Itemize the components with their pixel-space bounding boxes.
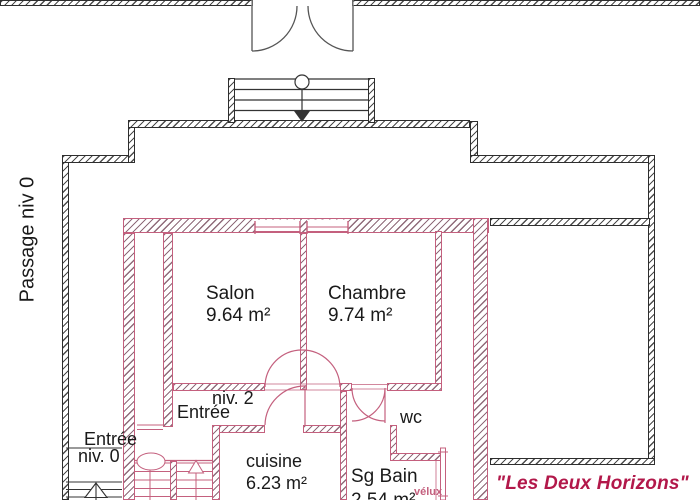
cuisine-area: 6.23 m² — [246, 474, 307, 493]
sgbain-area: 2.54 m² — [351, 491, 415, 500]
passage-label: Passage niv 0 — [18, 165, 39, 315]
chambre-label: Chambre — [328, 284, 406, 304]
cuisine-door-arc — [265, 386, 305, 425]
plan-linework — [0, 0, 700, 500]
entree-niv2-line2: Entrée — [177, 403, 230, 422]
stair-up-arrow-pink — [189, 461, 204, 474]
stair-down-arrow — [294, 111, 310, 122]
salon-label: Salon — [206, 284, 255, 304]
chambre-area: 9.74 m² — [328, 306, 392, 326]
salon-area: 9.64 m² — [206, 306, 270, 326]
floor-plan: Passage niv 0 Salon 9.64 m² Chambre 9.74… — [0, 0, 700, 500]
double-door-top — [252, 0, 353, 51]
stair-start-circle — [295, 75, 309, 89]
cuisine-label: cuisine — [246, 452, 302, 471]
sgbain-label: Sg Bain — [351, 467, 418, 487]
velux-label: vélux — [414, 487, 442, 499]
residence-name: "Les Deux Horizons" — [496, 474, 689, 494]
curved-start-step — [137, 453, 165, 470]
wc-label: wc — [400, 408, 422, 427]
entree-niv0-line2: niv. 0 — [78, 447, 120, 466]
chambre-window — [307, 220, 348, 235]
salon-door-arc — [265, 350, 302, 387]
stairs-top — [235, 75, 368, 122]
salon-window — [255, 220, 300, 235]
chambre-door-arc — [302, 350, 340, 387]
